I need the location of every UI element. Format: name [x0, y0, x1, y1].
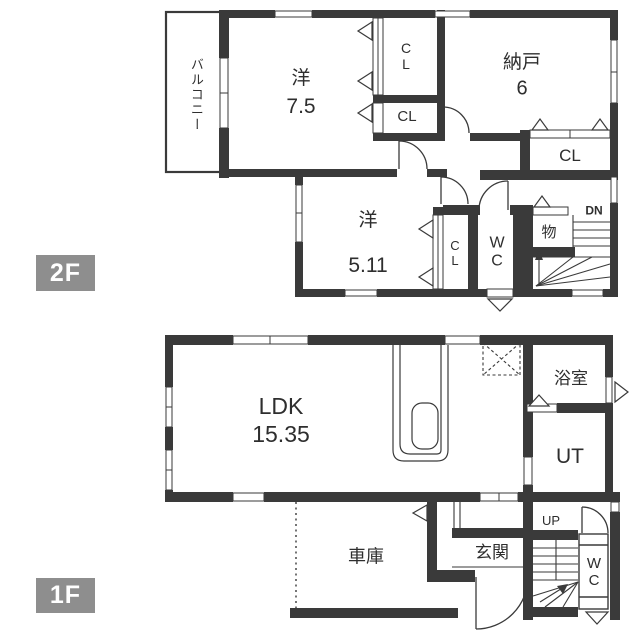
room-label-western-7-5-size: 7.5: [286, 96, 315, 118]
room-label-utility: UT: [556, 446, 584, 468]
room-label-ldk-size: 15.35: [252, 422, 310, 446]
room-label-bathroom: 浴室: [554, 370, 588, 388]
room-label-wc-2f: W C: [489, 236, 504, 271]
room-label-closet-right: CL: [559, 147, 581, 165]
room-label-storage-small: 物: [541, 225, 556, 241]
stairs-up-label: UP: [542, 514, 560, 528]
stairs-1f: [533, 540, 578, 607]
room-label-storage-room-name: 納戸: [503, 53, 541, 73]
refrigerator-space: [483, 343, 520, 375]
room-label-garage: 車庫: [348, 548, 384, 567]
room-label-western-5-11-name: 洋: [358, 211, 377, 231]
room-label-storage-room-size: 6: [516, 79, 527, 100]
floor-tag-1f: 1F: [36, 578, 95, 613]
stairs-down-label: DN: [585, 205, 602, 218]
room-label-closet-top: C L: [401, 41, 411, 71]
kitchen-counter: [393, 345, 448, 461]
room-label-wc-1f: W C: [587, 556, 601, 589]
floor-tag-2f: 2F: [36, 255, 95, 291]
room-label-balcony: バルコニー: [189, 58, 203, 133]
room-label-entrance: 玄関: [475, 544, 509, 562]
room-label-western-7-5-name: 洋: [291, 69, 310, 89]
room-label-closet-mid: CL: [397, 109, 416, 125]
room-label-closet-small: C L: [450, 239, 459, 267]
floor-plan-page: バルコニー 洋 7.5 C L CL 納戸 6 CL 洋 5.11 C L W …: [0, 0, 631, 640]
room-label-ldk-name: LDK: [259, 394, 304, 418]
room-label-western-5-11-size: 5.11: [348, 255, 387, 277]
